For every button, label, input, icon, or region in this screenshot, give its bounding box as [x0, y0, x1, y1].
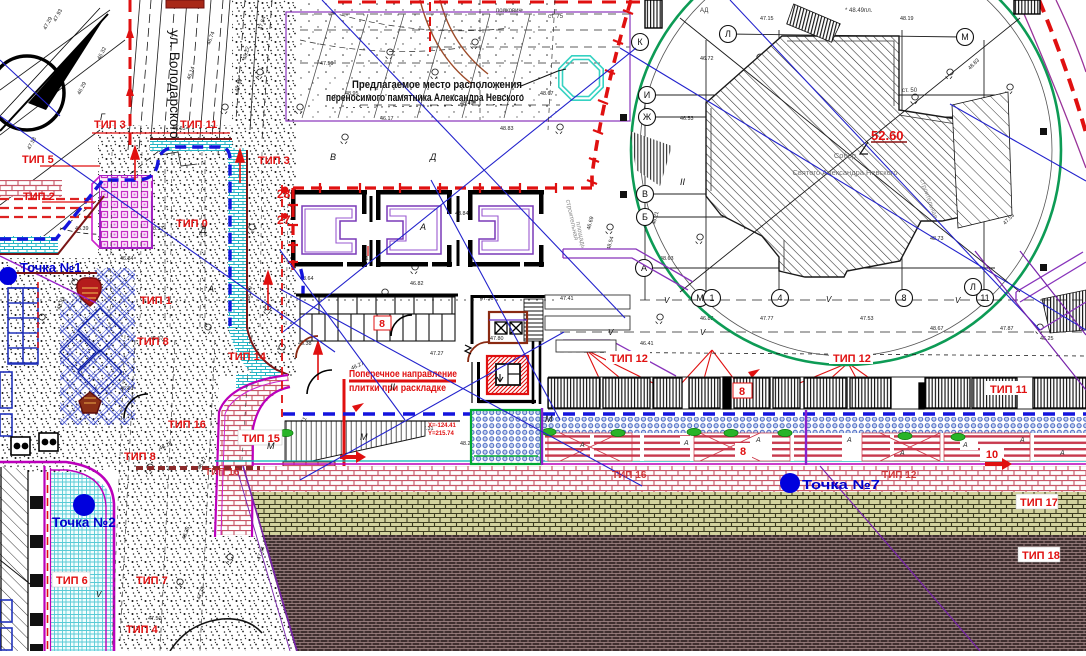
- svg-text:Л: Л: [970, 282, 976, 292]
- svg-text:8: 8: [901, 293, 906, 303]
- svg-text:ТИП 11: ТИП 11: [180, 119, 217, 131]
- svg-text:47.41: 47.41: [560, 296, 574, 302]
- svg-text:АД: АД: [700, 8, 708, 14]
- svg-text:М: М: [961, 32, 969, 42]
- svg-text:ТИП 5: ТИП 5: [22, 154, 54, 166]
- svg-text:А: А: [1059, 450, 1065, 457]
- svg-text:II: II: [390, 382, 396, 392]
- svg-text:ТИП 8: ТИП 8: [124, 451, 156, 463]
- svg-text:8: 8: [739, 386, 745, 398]
- svg-text:ТИП 17: ТИП 17: [1020, 497, 1058, 509]
- svg-text:46.82: 46.82: [410, 281, 424, 287]
- svg-text:ТИП 12: ТИП 12: [833, 353, 871, 365]
- svg-text:А: А: [755, 437, 761, 444]
- svg-text:плитки при раскладке: плитки при раскладке: [349, 383, 446, 394]
- svg-text:11: 11: [980, 293, 989, 303]
- svg-text:ТИП 12: ТИП 12: [882, 470, 917, 481]
- svg-text:Точка №1: Точка №1: [20, 260, 81, 275]
- svg-text:* 48.49пл.: * 48.49пл.: [845, 8, 873, 14]
- svg-text:ТИП 16: ТИП 16: [168, 419, 206, 431]
- svg-text:47.15: 47.15: [760, 16, 774, 22]
- svg-text:47.50: 47.50: [148, 616, 162, 622]
- svg-text:М: М: [696, 293, 704, 303]
- svg-text:Б: Б: [642, 212, 648, 222]
- svg-text:48.67: 48.67: [930, 326, 944, 332]
- svg-text:4: 4: [777, 293, 782, 303]
- svg-text:М: М: [267, 441, 275, 451]
- svg-text:8: 8: [740, 446, 746, 458]
- svg-text:X=-124.41: X=-124.41: [428, 423, 457, 429]
- svg-text:V: V: [955, 296, 961, 305]
- svg-text:V: V: [664, 296, 670, 305]
- svg-text:Ж: Ж: [643, 112, 652, 122]
- svg-text:Точка №7: Точка №7: [802, 477, 880, 492]
- svg-text:А: А: [419, 222, 426, 232]
- svg-text:ТИП 6: ТИП 6: [56, 575, 88, 587]
- svg-text:48.67: 48.67: [540, 91, 554, 97]
- svg-text:Поперечное направление: Поперечное направление: [349, 369, 457, 380]
- svg-text:ст. 50: ст. 50: [902, 88, 918, 94]
- svg-text:V: V: [826, 295, 832, 304]
- svg-text:48.19: 48.19: [900, 16, 914, 22]
- svg-text:ТИП 8: ТИП 8: [137, 336, 169, 348]
- svg-text:ст. 75: ст. 75: [548, 14, 564, 20]
- svg-text:М: М: [360, 432, 368, 442]
- svg-text:переносимого памятника Алексан: переносимого памятника Александра Невско…: [326, 92, 524, 104]
- svg-text:А: А: [579, 442, 585, 449]
- svg-text:Д: Д: [429, 152, 437, 162]
- svg-text:ТИП 16: ТИП 16: [612, 470, 647, 481]
- svg-text:8: 8: [379, 318, 385, 330]
- svg-text:А: А: [899, 450, 905, 457]
- svg-text:полкович: полкович: [496, 8, 522, 14]
- svg-text:10: 10: [986, 449, 998, 461]
- svg-text:В: В: [330, 152, 336, 162]
- svg-text:ТИП 7: ТИП 7: [136, 575, 168, 587]
- svg-text:Собор: Собор: [834, 151, 856, 160]
- svg-text:Предлагаемое место расположени: Предлагаемое место расположения: [352, 79, 522, 91]
- svg-text:47.87: 47.87: [1000, 326, 1014, 332]
- svg-text:К: К: [637, 37, 643, 47]
- svg-text:47.59: 47.59: [320, 61, 334, 67]
- svg-text:А: А: [962, 442, 968, 449]
- svg-text:ТИП 18: ТИП 18: [1022, 550, 1060, 562]
- svg-text:II: II: [680, 177, 686, 187]
- svg-text:ТИП 4: ТИП 4: [126, 624, 159, 636]
- svg-text:48.83: 48.83: [500, 126, 514, 132]
- svg-text:52.60: 52.60: [871, 128, 904, 143]
- svg-text:ТИП 3: ТИП 3: [258, 155, 290, 167]
- svg-text:М: М: [545, 414, 553, 424]
- svg-text:ТИП 11: ТИП 11: [990, 384, 1027, 396]
- svg-text:А: А: [846, 437, 852, 444]
- svg-text:А: А: [683, 440, 689, 447]
- svg-text:1: 1: [709, 293, 714, 303]
- svg-text:Л: Л: [725, 29, 731, 39]
- svg-text:А: А: [207, 284, 214, 294]
- svg-text:46.41: 46.41: [640, 341, 654, 347]
- svg-text:V: V: [608, 328, 614, 337]
- svg-text:ТИП 2: ТИП 2: [23, 191, 55, 203]
- svg-text:47.80: 47.80: [490, 336, 504, 342]
- svg-text:Д: Д: [199, 225, 207, 235]
- svg-text:ТИП 3: ТИП 3: [94, 119, 126, 131]
- svg-text:V: V: [700, 328, 706, 337]
- svg-text:46.84: 46.84: [120, 256, 134, 262]
- svg-text:V: V: [96, 590, 102, 599]
- svg-text:47.53: 47.53: [860, 316, 874, 322]
- svg-text:46.72: 46.72: [700, 56, 714, 62]
- svg-text:ТИП 12: ТИП 12: [610, 353, 648, 365]
- svg-text:А: А: [1019, 437, 1025, 444]
- svg-text:Точка №2: Точка №2: [52, 515, 116, 530]
- svg-text:ТИП 1: ТИП 1: [140, 295, 172, 307]
- svg-text:И: И: [644, 90, 650, 100]
- svg-text:В: В: [642, 189, 648, 199]
- svg-text:47.77: 47.77: [760, 316, 774, 322]
- svg-text:Y=215.74: Y=215.74: [428, 431, 455, 437]
- svg-text:Святого Александра Невского: Святого Александра Невского: [792, 168, 897, 177]
- svg-text:47.27: 47.27: [430, 351, 444, 357]
- svg-text:ТИП 16: ТИП 16: [205, 467, 240, 478]
- svg-text:ТИП 14: ТИП 14: [228, 351, 267, 363]
